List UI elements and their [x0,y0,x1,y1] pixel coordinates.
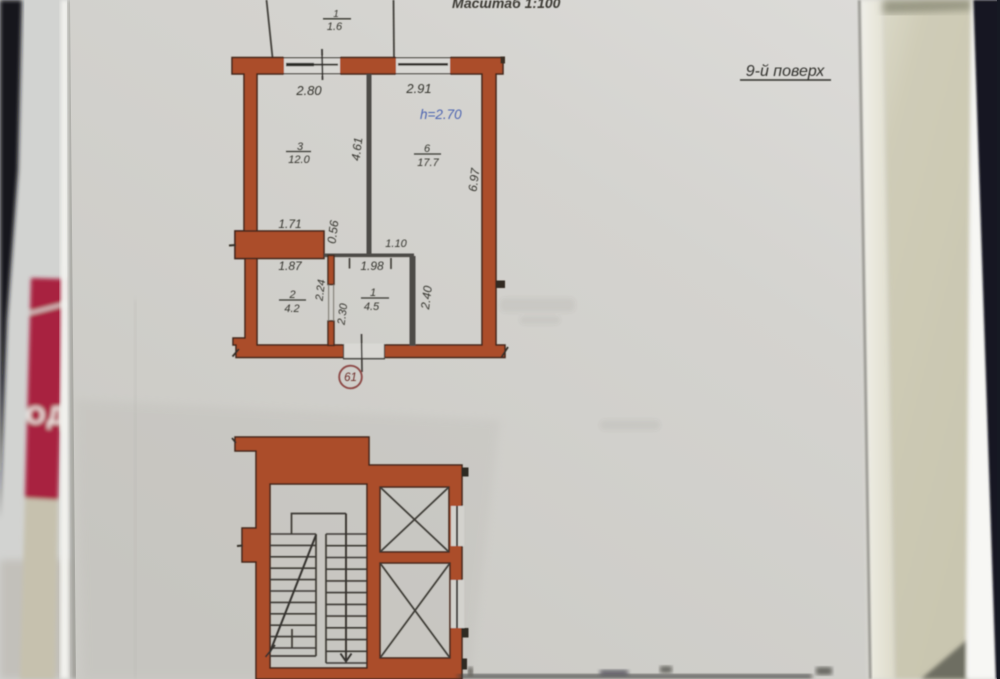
svg-text:4.2: 4.2 [284,303,299,315]
svg-text:2.40: 2.40 [418,285,435,311]
svg-text:0.56: 0.56 [325,219,342,244]
svg-text:6.97: 6.97 [466,166,483,192]
svg-text:2: 2 [288,289,295,301]
svg-text:17.7: 17.7 [417,157,439,169]
svg-text:1.87: 1.87 [278,259,303,273]
svg-text:1: 1 [370,287,376,299]
svg-text:1.6: 1.6 [327,21,343,33]
svg-text:61: 61 [344,372,357,384]
svg-text:2.91: 2.91 [405,81,431,96]
svg-text:9-й поверх: 9-й поверх [746,63,826,80]
svg-text:Масштаб 1:100: Масштаб 1:100 [452,0,561,11]
svg-text:6: 6 [424,143,431,155]
svg-text:1.71: 1.71 [278,217,301,231]
svg-text:12.0: 12.0 [288,154,310,166]
svg-text:2.80: 2.80 [295,83,322,98]
svg-text:4.5: 4.5 [364,301,380,313]
svg-text:1.10: 1.10 [385,238,407,250]
svg-text:4.61: 4.61 [349,137,366,162]
svg-text:h=2.70: h=2.70 [420,107,462,122]
svg-text:1.98: 1.98 [360,259,384,273]
